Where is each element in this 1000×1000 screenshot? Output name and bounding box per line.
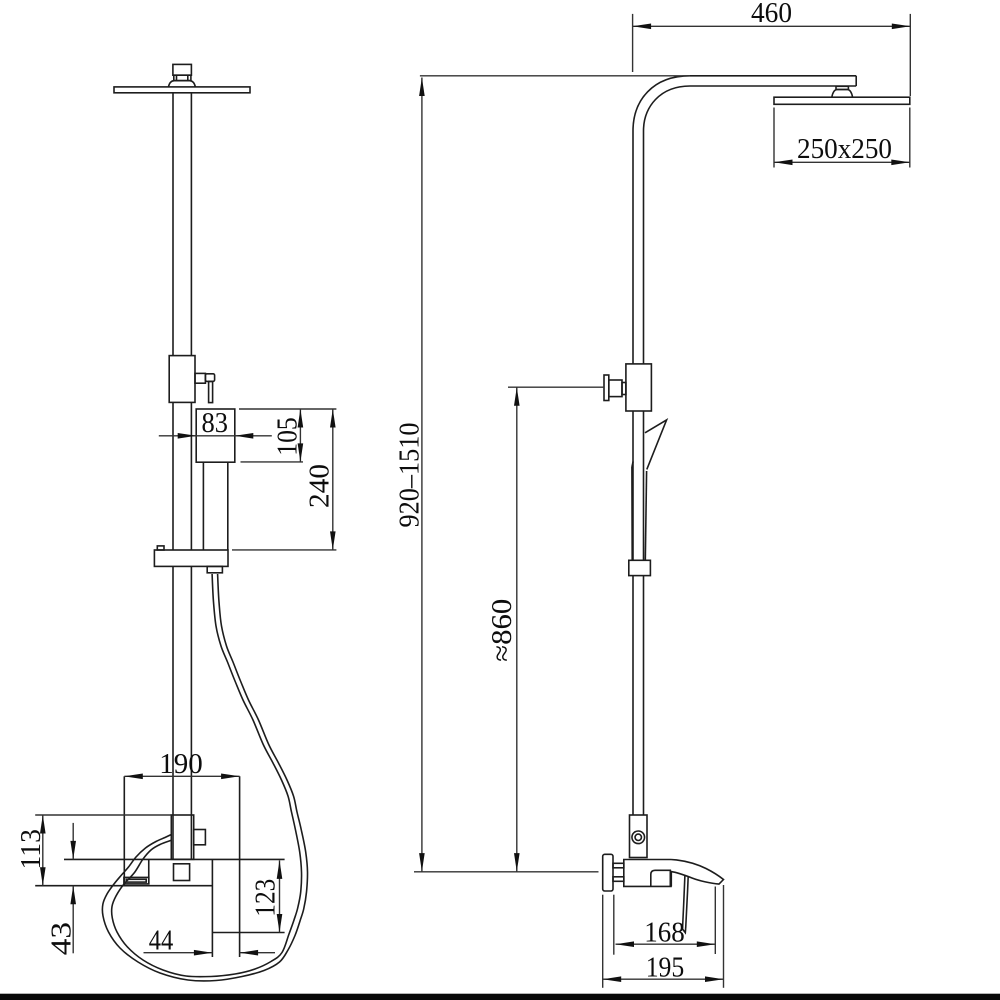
svg-text:≈860: ≈860 [487, 599, 518, 662]
svg-text:250x250: 250x250 [797, 134, 892, 165]
svg-text:105: 105 [272, 417, 303, 456]
svg-text:83: 83 [202, 408, 229, 439]
svg-text:190: 190 [159, 749, 203, 780]
svg-text:240: 240 [304, 464, 335, 508]
svg-text:168: 168 [644, 917, 685, 948]
svg-text:460: 460 [751, 0, 792, 29]
svg-text:43: 43 [47, 922, 78, 955]
svg-text:44: 44 [149, 926, 174, 957]
svg-text:920–1510: 920–1510 [395, 423, 426, 528]
svg-text:195: 195 [646, 953, 685, 984]
svg-text:113: 113 [16, 829, 47, 870]
svg-text:123: 123 [251, 879, 282, 917]
